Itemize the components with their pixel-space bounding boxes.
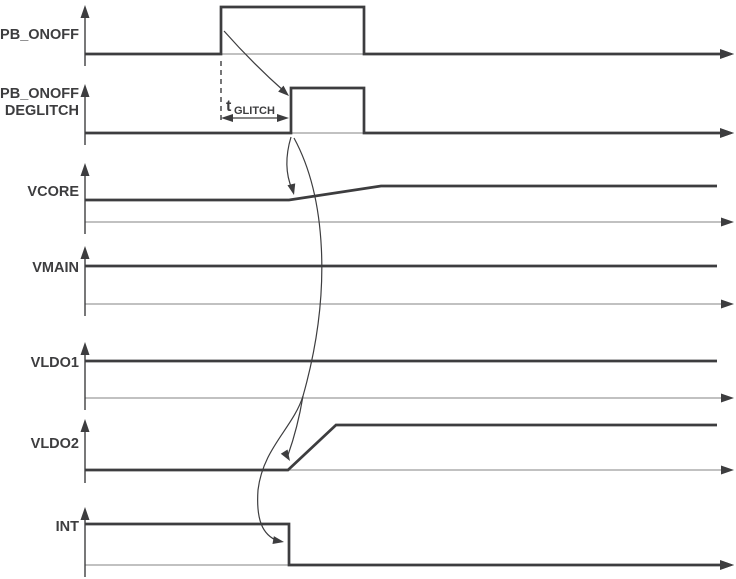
right-arrow-icon (720, 560, 734, 570)
label-pb-onoff-deglitch-line2: DEGLITCH (5, 103, 79, 119)
label-pb-onoff-deglitch-line1: PB_ONOFF (0, 86, 79, 102)
right-arrow-icon (720, 128, 734, 138)
label-pb-onoff: PB_ONOFF (0, 27, 79, 43)
label-vldo2: VLDO2 (31, 436, 79, 452)
arrow-branch-to-int (258, 396, 303, 541)
label-vmain: VMAIN (32, 260, 79, 276)
right-arrow-icon (721, 300, 734, 309)
right-arrow-icon (721, 466, 734, 475)
timing-diagram-canvas: t GLITCH PB_ONOFF PB_ONOFF DEGLITCH VCOR… (0, 0, 736, 579)
tglitch-symbol: t (226, 98, 232, 115)
up-arrow-icon (81, 5, 90, 18)
int-waveform (85, 524, 720, 565)
up-arrow-icon (81, 246, 90, 259)
label-int: INT (56, 519, 80, 535)
arrow-pbonoff-to-deglitch (224, 31, 285, 92)
label-vcore: VCORE (27, 184, 79, 200)
up-arrow-icon (81, 419, 90, 432)
right-arrow-icon (721, 394, 734, 403)
pb-onoff-waveform (85, 7, 720, 54)
arrowhead-icon (287, 183, 297, 196)
label-vldo1: VLDO1 (31, 355, 79, 371)
pb-onoff-deglitch-waveform (85, 88, 720, 133)
right-arrow-icon (277, 114, 289, 122)
arrowhead-icon (281, 450, 294, 464)
vldo2-waveform (85, 425, 717, 470)
left-arrow-icon (221, 114, 233, 122)
tglitch-subscript: GLITCH (234, 105, 275, 117)
up-arrow-icon (81, 342, 90, 355)
right-arrow-icon (721, 218, 734, 227)
time-axes (85, 50, 734, 570)
arrowhead-icon (272, 536, 284, 546)
waveforms (85, 7, 734, 570)
signal-labels: PB_ONOFF PB_ONOFF DEGLITCH VCORE VMAIN V… (0, 27, 79, 535)
right-arrow-icon (720, 49, 734, 59)
timing-diagram: t GLITCH PB_ONOFF PB_ONOFF DEGLITCH VCOR… (0, 0, 736, 579)
up-arrow-icon (81, 507, 90, 520)
up-arrow-icon (81, 163, 90, 176)
arrow-deglitch-to-vcore (287, 137, 292, 189)
vcore-waveform (85, 186, 717, 200)
tglitch-annotation: t GLITCH (221, 61, 289, 123)
arrow-branch-to-vldo2 (288, 396, 303, 455)
up-arrow-icon (81, 84, 90, 97)
amplitude-axes (81, 5, 90, 577)
